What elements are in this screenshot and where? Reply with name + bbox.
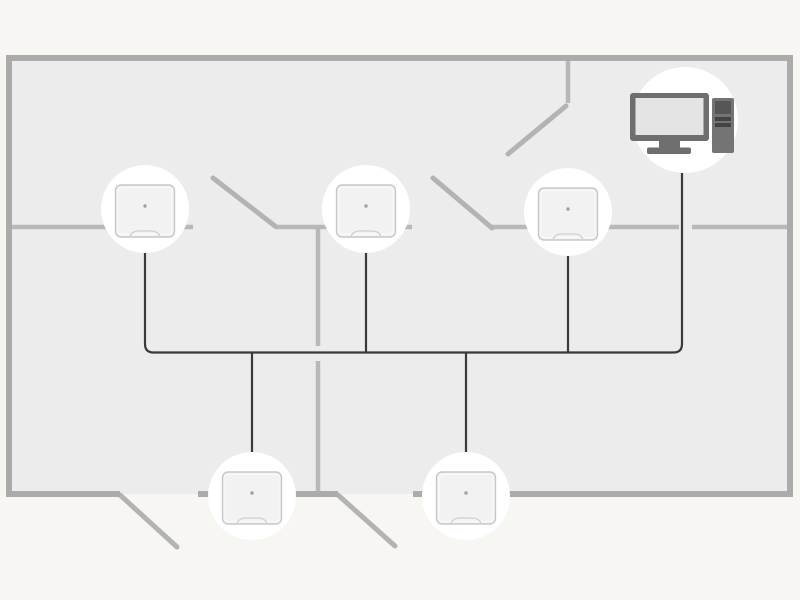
network-device-icon [223,472,282,524]
network-device-icon [337,185,396,237]
network-device-icon [437,472,496,524]
device-node-4[interactable] [208,452,296,540]
tower-top-panel [715,101,731,114]
floorplan-canvas [0,0,800,600]
device-node-1[interactable] [101,165,189,253]
monitor-stand-base [647,148,691,155]
device-body [437,472,496,524]
tower-drive-stripe [715,117,731,121]
device-body [116,185,175,237]
device-node-3[interactable] [524,168,612,256]
tower-drive-stripe [715,123,731,127]
floorplan-svg [0,0,800,600]
network-device-icon [116,185,175,237]
device-node-2[interactable] [322,165,410,253]
device-status-dot [143,204,146,207]
device-body [539,188,598,240]
device-status-dot [464,491,467,494]
network-device-icon [539,188,598,240]
device-node-5[interactable] [422,452,510,540]
device-status-dot [250,491,253,494]
device-body [337,185,396,237]
device-status-dot [566,207,569,210]
device-status-dot [364,204,367,207]
monitor-screen [636,98,704,135]
device-body [223,472,282,524]
